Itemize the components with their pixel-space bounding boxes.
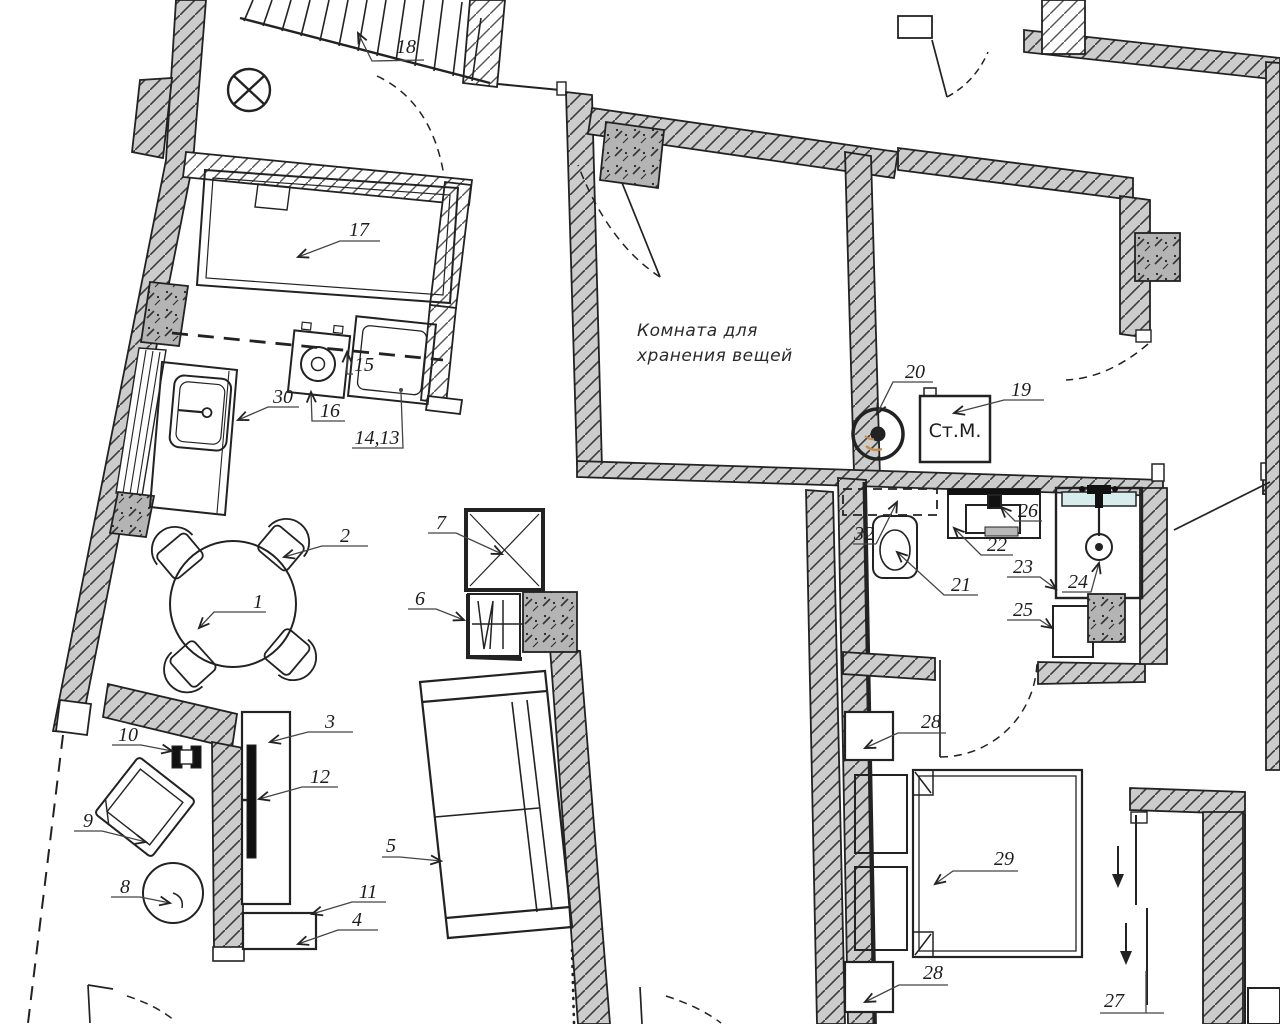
wall-tv [212, 742, 243, 950]
column-bathroom [1088, 594, 1125, 642]
column-left-lower [110, 492, 154, 537]
shower-mixer [1087, 485, 1111, 494]
wall-bath-bottom-right [1038, 662, 1145, 684]
wall-kitchen-right [421, 305, 456, 404]
down-arrow-icon [1112, 846, 1124, 888]
item-label-3: 3 [324, 711, 335, 733]
item-label-21: 21 [951, 574, 971, 596]
item-label-29: 29 [994, 848, 1014, 870]
washing-machine-label: Ст.М. [929, 420, 982, 442]
door-leaf-bottom-left [88, 985, 113, 1023]
room-label-storage-line2: хранения вещей [636, 346, 793, 366]
nightstand-28-top [845, 712, 893, 760]
wall-step [1131, 812, 1147, 823]
item-label-5: 5 [386, 835, 396, 857]
item-label-11: 11 [359, 881, 378, 903]
door-arc-loggia [947, 52, 988, 97]
item-label-23: 23 [1013, 556, 1033, 578]
dashed-kitchen-line [172, 333, 443, 360]
column-left-upper [141, 282, 188, 346]
item-label-17: 17 [349, 219, 370, 241]
pouf-8 [143, 863, 203, 923]
column-storage-entry [600, 122, 664, 188]
item-label-1: 1 [253, 591, 263, 613]
door-jamb [557, 82, 566, 95]
item-label-18: 18 [396, 36, 416, 58]
item-label-24: 24 [1068, 571, 1088, 593]
wall-end-cap [56, 700, 91, 735]
door-arc-bottom-left [127, 996, 176, 1022]
wall-bottomright [1203, 812, 1243, 1024]
bench-11-4 [243, 913, 316, 949]
exhaust-fan-icon [228, 69, 270, 111]
wall-sofa-side [550, 648, 610, 1024]
wardrobe-7 [466, 510, 543, 590]
item-label-14-13: 14,13 [355, 427, 400, 449]
wall-stair-right [463, 0, 505, 87]
wall-bedroom-topright [1130, 788, 1245, 814]
door-arc-hall [1066, 344, 1148, 380]
item-label-9: 9 [83, 810, 93, 832]
wall-tv-cap [213, 947, 244, 961]
item-label-22: 22 [987, 534, 1007, 556]
floor-plan: 18 17 30 16 15 14,13 1 2 7 6 10 9 8 3 12… [0, 0, 1280, 1024]
dining-table-1 [170, 541, 296, 667]
door-arc-bathroom [940, 660, 1037, 757]
kitchen-counter [150, 362, 237, 515]
fixture-10 [172, 746, 201, 768]
item-label-2: 2 [340, 525, 350, 547]
item-label-7: 7 [436, 512, 447, 534]
item-label-28-top: 28 [921, 711, 941, 733]
wall-left-outer [53, 0, 206, 733]
item-label-15: 15 [354, 354, 374, 376]
stove-16 [288, 321, 351, 397]
door-leaf-corridor [1174, 482, 1270, 530]
item-label-32: 32 [853, 523, 874, 545]
door-jamb [1136, 330, 1151, 342]
item-label-12: 12 [310, 766, 330, 788]
bed-29 [855, 770, 1082, 957]
door-arc-room17 [377, 76, 444, 176]
cabinet-25 [1053, 606, 1093, 657]
kitchen-sink-30 [169, 375, 232, 452]
room-label-storage-line1: Комната для [637, 321, 758, 341]
wall-storage-left [566, 92, 602, 468]
item-label-16: 16 [320, 400, 340, 422]
door-stop [1152, 464, 1164, 481]
item-label-6: 6 [415, 588, 425, 610]
column-hallway [523, 592, 577, 652]
item-label-19: 19 [1011, 379, 1031, 401]
dashed-boundary-line [28, 735, 63, 1023]
nightstand-28-bottom [845, 962, 893, 1012]
wall-kitchen-cap [426, 396, 462, 414]
item-label-20: 20 [905, 361, 925, 383]
wall-hall-top [898, 148, 1133, 200]
wall-right-outer [1266, 62, 1280, 770]
neighbor-furniture [1248, 988, 1280, 1024]
hanger-6 [466, 594, 530, 659]
faucet-26 [988, 495, 1001, 508]
column-hall [1135, 233, 1180, 281]
item-label-26: 26 [1018, 500, 1038, 522]
wall-bath-right [1140, 488, 1167, 664]
down-arrow-icon [1120, 923, 1132, 965]
item-label-8: 8 [120, 876, 130, 898]
sofa-5 [420, 671, 572, 938]
door-leaf-closet [640, 987, 642, 1024]
wall-loggia-stub [898, 16, 932, 38]
walls [53, 0, 1280, 1024]
door-leaf-loggia [932, 40, 947, 97]
stairs [240, 0, 490, 83]
toilet-21 [873, 516, 917, 578]
item-label-10: 10 [118, 724, 138, 746]
column-top-corner [1042, 0, 1085, 54]
item-label-4: 4 [352, 909, 362, 931]
floor-plan-drawing: 18 17 30 16 15 14,13 1 2 7 6 10 9 8 3 12… [0, 0, 1280, 1024]
item-label-27: 27 [1104, 990, 1125, 1012]
item-label-30: 30 [272, 386, 293, 408]
wall-bath-bottom-left [843, 652, 935, 680]
item-label-28-bottom: 28 [923, 962, 943, 984]
item-label-25: 25 [1013, 599, 1033, 621]
door-arc-closet [666, 996, 721, 1023]
slide-track-27 [1112, 815, 1147, 1005]
